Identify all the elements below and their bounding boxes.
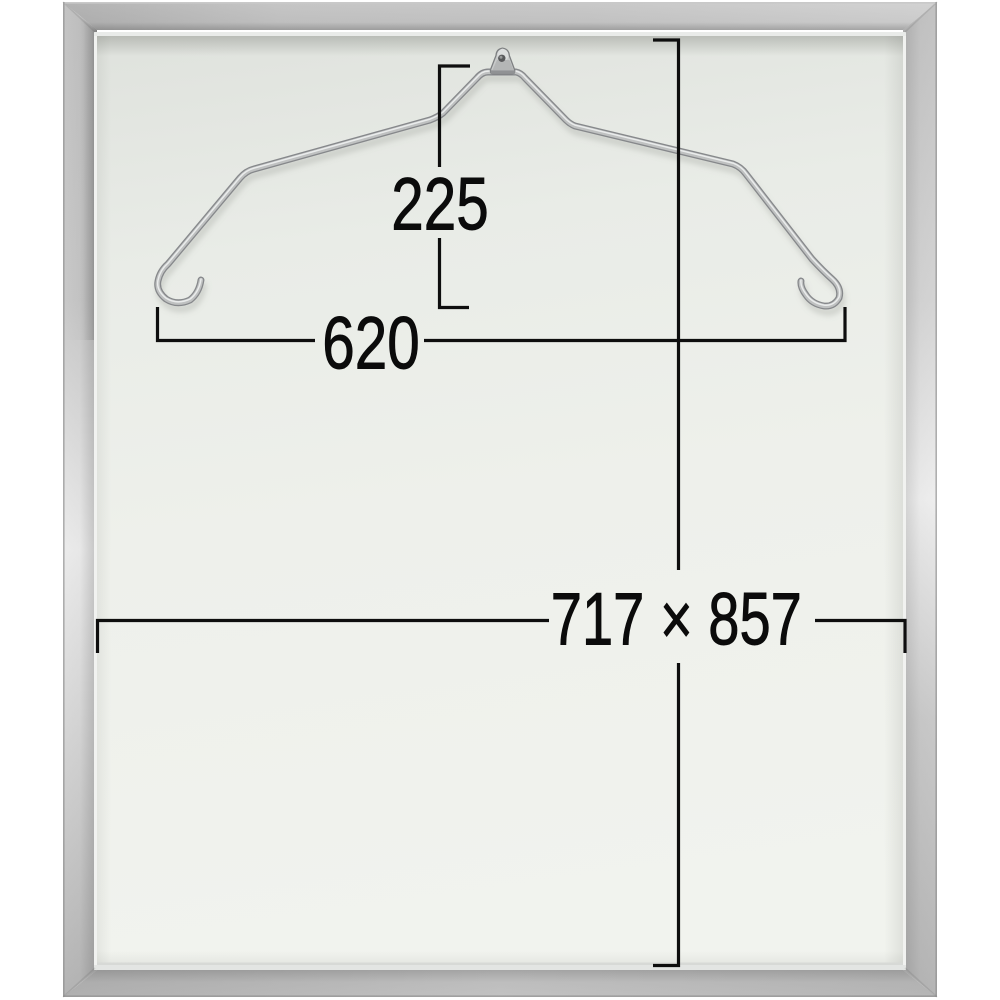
svg-text:620: 620 — [322, 303, 420, 385]
svg-text:225: 225 — [391, 164, 489, 246]
svg-text:717 × 857: 717 × 857 — [551, 578, 802, 660]
